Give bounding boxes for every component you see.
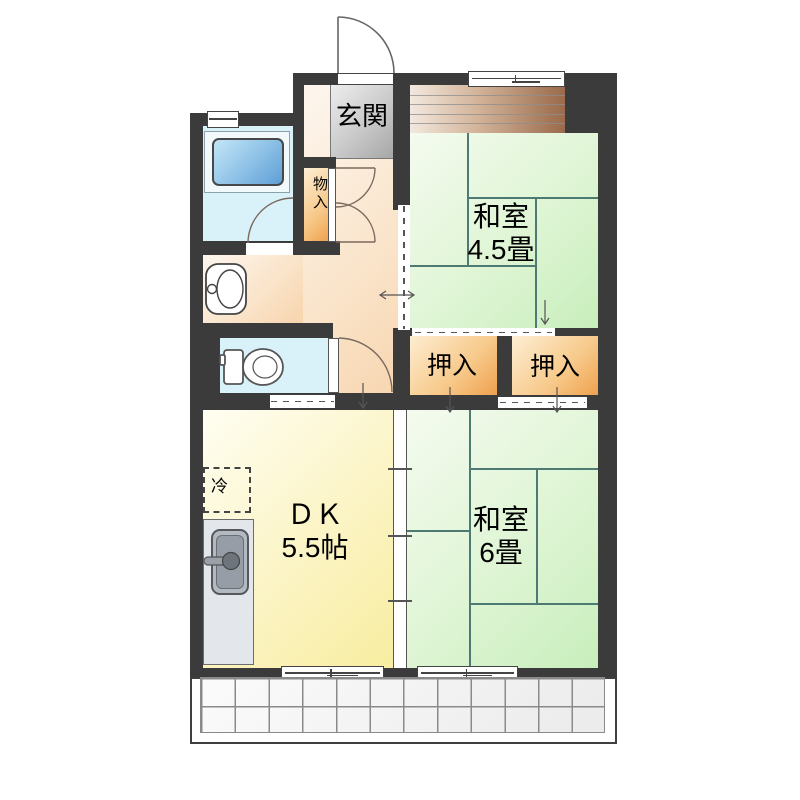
- label-washitsu-6-name: 和室: [473, 504, 529, 535]
- entrance-door-opening: [338, 73, 393, 85]
- label-washitsu-6: 和室 6畳: [438, 503, 564, 569]
- veranda-strip: [405, 85, 565, 133]
- label-dk: ＤＫ 5.5帖: [250, 498, 380, 564]
- kitchen-sink-basin: [216, 535, 244, 589]
- window-north: [468, 71, 565, 87]
- window-glyph-tick: [330, 669, 332, 677]
- room-toilet: [220, 338, 328, 393]
- label-dk-size: 5.5帖: [282, 532, 349, 563]
- monoire-door-panel: [328, 168, 336, 242]
- sliding-door-hall-washitsu45: [398, 205, 410, 330]
- label-washitsu-45: 和室 4.5畳: [438, 200, 564, 266]
- label-washitsu-45-name: 和室: [473, 201, 529, 232]
- partition-dk-washitsu6: [393, 410, 407, 668]
- window-glyph-line: [209, 118, 237, 120]
- label-washitsu-6-size: 6畳: [479, 537, 523, 568]
- veranda-plank-line: [405, 104, 565, 105]
- sliding-door-track: [415, 332, 552, 334]
- label-refrigerator: 冷: [211, 477, 228, 497]
- wall-segment: [190, 113, 293, 126]
- wall-segment: [565, 85, 598, 133]
- wall-segment: [203, 323, 333, 338]
- sliding-door-track: [271, 401, 333, 403]
- label-dk-name: ＤＫ: [287, 499, 343, 530]
- label-oshiire-2: 押入: [512, 353, 598, 383]
- window-glyph-tick: [515, 75, 517, 84]
- tatami-mat-line: [469, 603, 598, 605]
- room-washroom: [203, 255, 303, 323]
- sliding-door-track: [403, 206, 405, 329]
- window-glyph-line: [472, 78, 561, 80]
- window-glyph-line: [421, 672, 514, 674]
- tatami-mat-line: [469, 468, 598, 470]
- wall-segment: [203, 338, 220, 393]
- veranda-plank-line: [405, 123, 565, 124]
- sliding-door-washitsu45-oshiire: [412, 328, 555, 336]
- partition-tick: [388, 600, 412, 602]
- floor-plan: 玄関 物入 和室 4.5畳 押入 押入 和室 6畳 ＤＫ 5.5帖 冷: [0, 0, 800, 800]
- entrance-door-arc: [338, 17, 394, 73]
- bathroom-door-opening: [246, 243, 293, 255]
- window-glyph-tick: [466, 669, 468, 677]
- label-washitsu-45-size: 4.5畳: [468, 234, 535, 265]
- sliding-door-oshiire-washitsu6: [498, 397, 587, 408]
- wall-segment: [393, 73, 410, 210]
- veranda-plank-line: [405, 114, 565, 115]
- wall-segment: [190, 668, 617, 677]
- bathtub-icon: [212, 138, 284, 186]
- partition-tick: [388, 468, 412, 470]
- label-genkan: 玄関: [331, 101, 393, 132]
- toilet-door-panel: [328, 338, 339, 393]
- balcony-tile-grid: [200, 677, 605, 733]
- label-oshiire-1: 押入: [407, 352, 497, 382]
- tatami-mat-line: [467, 197, 598, 199]
- window-glyph-line: [285, 672, 380, 674]
- label-monoire: 物入: [306, 176, 328, 212]
- partition-tick: [388, 535, 412, 537]
- veranda-plank-line: [405, 95, 565, 96]
- sliding-door-track: [500, 402, 585, 404]
- sliding-door-hall-dk: [270, 395, 335, 408]
- wall-segment: [598, 73, 617, 677]
- wall-segment: [293, 157, 336, 168]
- window-bathroom: [207, 111, 239, 128]
